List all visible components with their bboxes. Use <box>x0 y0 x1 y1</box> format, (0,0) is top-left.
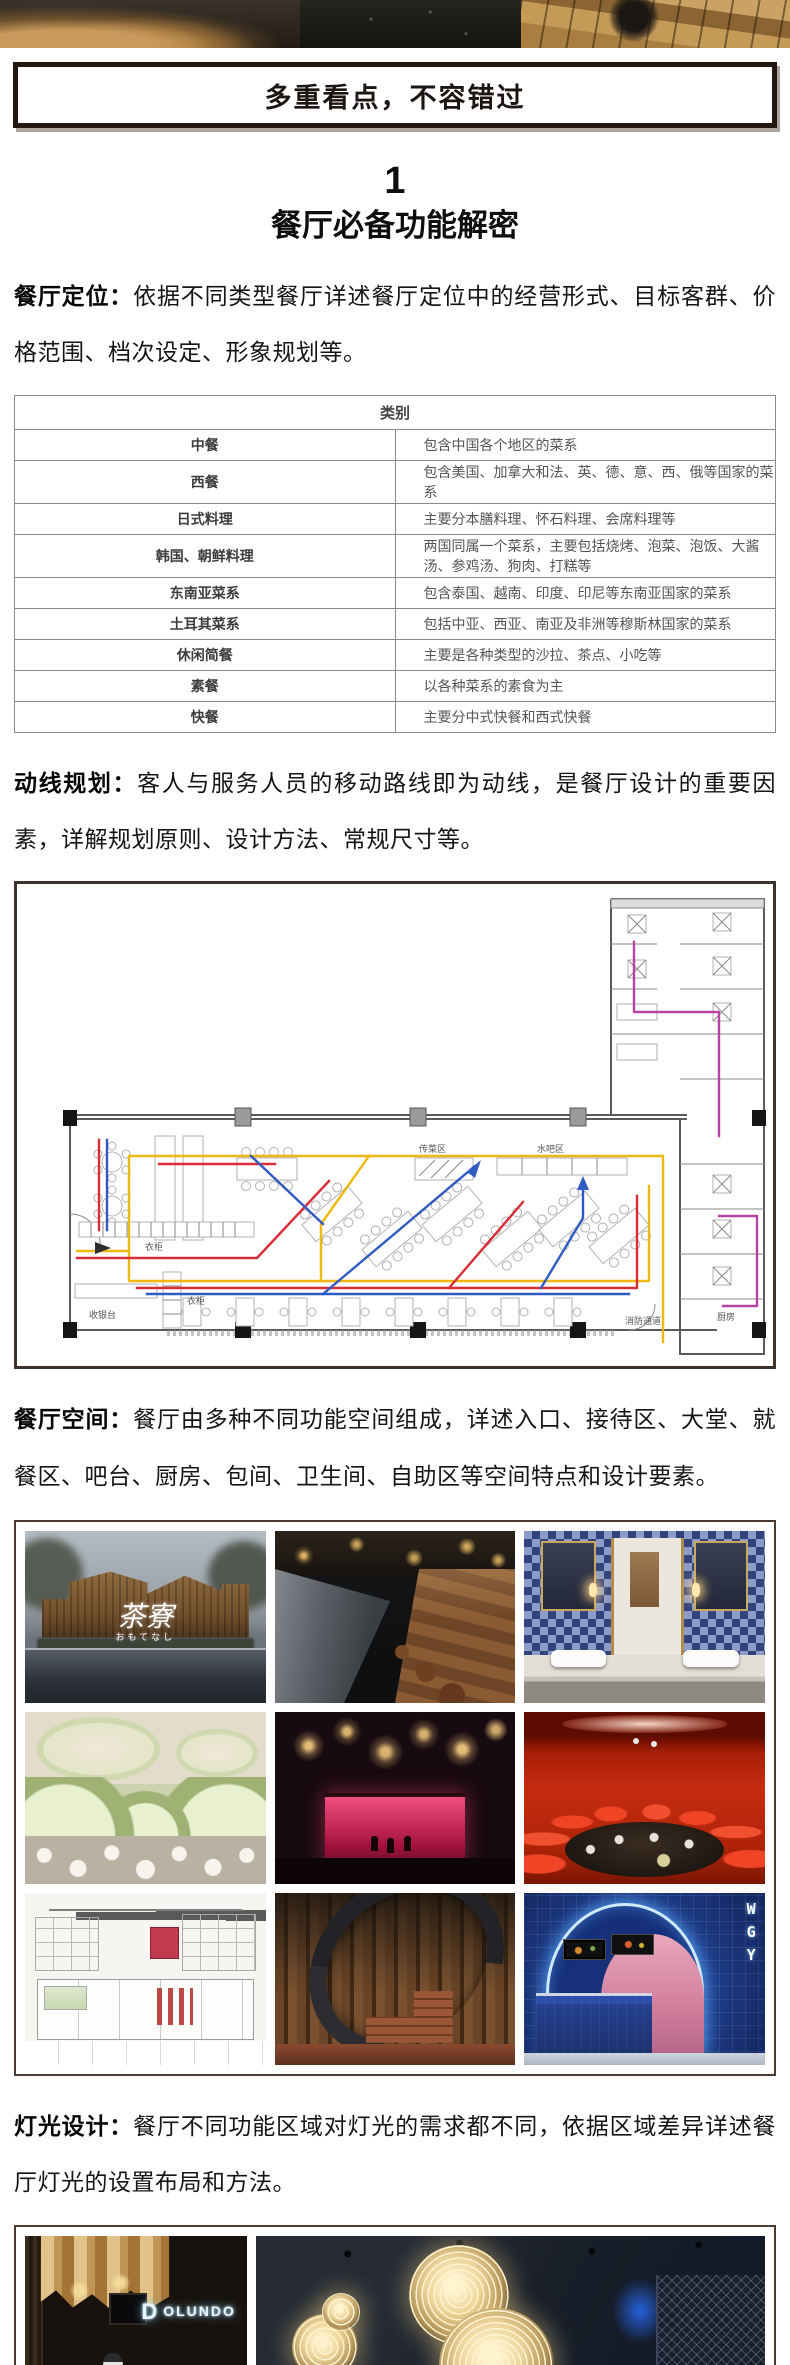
table-row: 快餐主要分中式快餐和西式快餐 <box>15 701 776 732</box>
chrome-lamps <box>633 1738 639 1744</box>
teahouse-logo: 茶寮おもてなし <box>25 1603 266 1643</box>
table-row: 中餐包含中国各个地区的菜系 <box>15 429 776 460</box>
bottom-photo-strip: DOLUNDO <box>14 2225 776 2365</box>
lattice-screen <box>656 2275 765 2365</box>
table-header-row: 类别 <box>15 395 776 429</box>
table-header-cell: 类别 <box>15 395 776 429</box>
photo-spiral-staircase <box>275 1893 516 2065</box>
pink-stage <box>325 1793 465 1864</box>
cuisine-name-cell: 素餐 <box>15 670 396 701</box>
white-chairs <box>25 1832 266 1884</box>
cuisine-desc-cell: 包含泰国、越南、印度、印尼等东南亚国家的菜系 <box>395 577 776 608</box>
hero-photo-strip <box>0 0 790 48</box>
cuisine-name-cell: 韩国、朝鲜料理 <box>15 534 396 577</box>
red-poster <box>150 1927 178 1958</box>
teahouse-logo-sub: おもてなし <box>25 1634 266 1643</box>
hero-wood-chairs <box>0 0 316 48</box>
cuisine-name-cell: 西餐 <box>15 460 396 503</box>
table-row: 韩国、朝鲜料理两国同属一个菜系，主要包括烧烤、泡菜、泡饭、大酱汤、参鸡汤、狗肉、… <box>15 534 776 577</box>
olundo-logo-text: OLUNDO <box>163 2303 236 2319</box>
basin <box>683 1650 738 1667</box>
cuisine-desc-cell: 以各种菜系的素食为主 <box>395 670 776 701</box>
ceiling-cove <box>37 1717 160 1781</box>
cuisine-desc-cell: 包含中国各个地区的菜系 <box>395 429 776 460</box>
floorplan-figure: 收银台 衣柜 衣柜 传菜区 水吧区 消防通道 厨房 <box>14 881 776 1369</box>
teahouse-logo-text: 茶寮 <box>117 1600 173 1633</box>
shelf-sketch <box>182 1914 256 1971</box>
route-kitchen-magenta <box>634 942 757 1306</box>
mirror <box>694 1541 749 1610</box>
sphere-chandelier <box>322 2293 360 2331</box>
table-row: 素餐以各种菜系的素食为主 <box>15 670 776 701</box>
tile-counter <box>536 1993 652 2053</box>
photo-grid: 茶寮おもてなし <box>14 1520 776 2076</box>
cuisine-desc-cell: 两国同属一个菜系，主要包括烧烤、泡菜、泡饭、大酱汤、参鸡汤、狗肉、打糕等 <box>395 534 776 577</box>
cuisine-name-cell: 东南亚菜系 <box>15 577 396 608</box>
chandeliers <box>275 1712 516 1801</box>
door <box>630 1552 659 1607</box>
plan-label-wardrobe: 衣柜 <box>145 1241 163 1252</box>
cuisine-desc-cell: 包含美国、加拿大和法、英、德、意、西、俄等国家的菜系 <box>395 460 776 503</box>
cuisine-name-cell: 休闲简餐 <box>15 639 396 670</box>
banner: 多重看点，不容错过 <box>13 62 777 128</box>
light-floor <box>524 2053 765 2065</box>
plan-label-kitchen: 厨房 <box>717 1311 735 1322</box>
section-number: 1 <box>0 160 790 204</box>
paragraph-lighting-lead: 灯光设计： <box>14 2113 133 2139</box>
photo-red-private-dining-room <box>524 1712 765 1884</box>
track-light <box>49 1909 242 1911</box>
photo-entrance-pendant-lamps: DOLUNDO <box>25 2236 247 2365</box>
hero-wood-counter <box>521 0 790 48</box>
green-arches <box>25 1777 266 1835</box>
table-row: 东南亚菜系包含泰国、越南、印度、印尼等东南亚国家的菜系 <box>15 577 776 608</box>
photo-sphere-chandeliers <box>256 2236 765 2365</box>
ceiling-cove <box>176 1729 258 1777</box>
table-row: 土耳其菜系包括中亚、西亚、南亚及非洲等穆斯林国家的菜系 <box>15 608 776 639</box>
olundo-logo-mark: D <box>141 2299 159 2325</box>
plan-label-fire-exit: 消防通道 <box>625 1315 661 1326</box>
plan-label-water-bar: 水吧区 <box>537 1143 564 1154</box>
shelf-sketch <box>35 1917 100 1971</box>
floorplan-svg: 收银台 衣柜 衣柜 传菜区 水吧区 消防通道 厨房 <box>17 884 776 1366</box>
cuisine-desc-cell: 主要分本膳料理、怀石料理、会席料理等 <box>395 503 776 534</box>
cuisine-desc-cell: 主要是各种类型的沙拉、茶点、小吃等 <box>395 639 776 670</box>
photo-sketch-style-cafe <box>25 1893 266 2065</box>
banner-title: 多重看点，不容错过 <box>265 76 526 115</box>
olundo-logo: DOLUNDO <box>141 2299 236 2325</box>
ceiling-glow <box>563 1715 727 1732</box>
steel-counter <box>275 1569 391 1703</box>
host-silhouette <box>103 2353 123 2365</box>
cuisine-name-cell: 快餐 <box>15 701 396 732</box>
performer-silhouettes <box>371 1836 378 1851</box>
photo-blue-tile-restroom <box>524 1531 765 1703</box>
photo-chandelier-stage-bar <box>275 1712 516 1884</box>
paragraph-circulation-lead: 动线规划： <box>14 770 137 796</box>
paragraph-space: 餐厅空间：餐厅由多种不同功能空间组成，详述入口、接待区、大堂、就餐区、吧台、厨房… <box>14 1391 776 1504</box>
cuisine-desc-cell: 包括中亚、西亚、南亚及非洲等穆斯林国家的菜系 <box>395 608 776 639</box>
photo-teahouse-exterior: 茶寮おもてなし <box>25 1531 266 1703</box>
photo-open-kitchen-counter <box>275 1531 516 1703</box>
paragraph-circulation: 动线规划：客人与服务人员的移动路线即为动线，是餐厅设计的重要因素，详解规划原则、… <box>14 755 776 868</box>
cuisine-name-cell: 日式料理 <box>15 503 396 534</box>
paragraph-lighting: 灯光设计：餐厅不同功能区域对灯光的需求都不同，依据区域差异详述餐厅灯光的设置布局… <box>14 2098 776 2211</box>
table-row: 休闲简餐主要是各种类型的沙拉、茶点、小吃等 <box>15 639 776 670</box>
wood-floor <box>275 2044 516 2065</box>
menu-screen <box>563 1939 606 1960</box>
plan-routes <box>77 942 757 1342</box>
section-title: 餐厅必备功能解密 <box>0 206 790 246</box>
paragraph-space-lead: 餐厅空间： <box>14 1406 133 1432</box>
paragraph-positioning-lead: 餐厅定位： <box>14 283 133 309</box>
cuisine-name-cell: 中餐 <box>15 429 396 460</box>
cuisine-desc-cell: 主要分中式快餐和西式快餐 <box>395 701 776 732</box>
pendant-lamp <box>589 1583 597 1597</box>
menu-screen <box>611 1934 654 1955</box>
mirror <box>541 1541 596 1610</box>
paragraph-positioning: 餐厅定位：依据不同类型餐厅详述餐厅定位中的经营形式、目标客群、价格范围、档次设定… <box>14 268 776 381</box>
plaza <box>25 1648 266 1703</box>
plan-label-wardrobe2: 衣柜 <box>187 1295 205 1306</box>
promo-page: 多重看点，不容错过 1 餐厅必备功能解密 餐厅定位：依据不同类型餐厅详述餐厅定位… <box>0 0 790 2365</box>
photo-green-organic-dining-hall <box>25 1712 266 1884</box>
table-row: 西餐包含美国、加拿大和法、英、德、意、西、俄等国家的菜系 <box>15 460 776 503</box>
foreground-tables <box>275 1858 516 1884</box>
sauce-bottles <box>157 1988 193 2026</box>
cuisine-name-cell: 土耳其菜系 <box>15 608 396 639</box>
plan-label-food-pass: 传菜区 <box>419 1143 446 1154</box>
stools <box>395 1645 409 1659</box>
display-case <box>44 1986 87 2010</box>
wood-curtain <box>25 2236 43 2365</box>
wgy-sign: WGY <box>742 1900 760 1969</box>
hero-dark-tabletop <box>300 0 537 48</box>
table-row: 日式料理主要分本膳料理、怀石料理、会席料理等 <box>15 503 776 534</box>
photo-blue-arch-food-counter: WGY <box>524 1893 765 2065</box>
tile-floor <box>25 2041 266 2065</box>
pendant-lamp <box>692 1583 700 1597</box>
cuisine-table: 类别 中餐包含中国各个地区的菜系 西餐包含美国、加拿大和法、英、德、意、西、俄等… <box>14 395 776 733</box>
plan-label-cashier: 收银台 <box>89 1309 116 1320</box>
wood-tables <box>395 1569 515 1703</box>
basin <box>551 1650 606 1667</box>
dining-table <box>565 1822 724 1877</box>
